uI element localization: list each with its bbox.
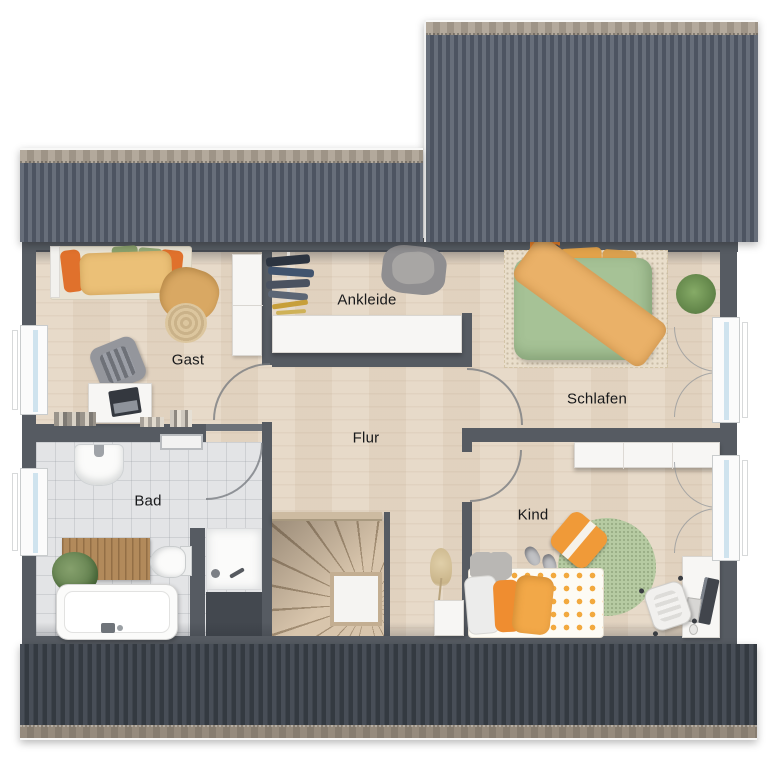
ankleide-sideboard xyxy=(272,315,462,353)
roof-bottom xyxy=(20,644,757,740)
gast-armchair-cushion xyxy=(98,345,137,385)
kind-window-glass xyxy=(724,460,729,558)
roof-top-left-ridge xyxy=(20,148,423,163)
flur-cabinet xyxy=(434,600,464,636)
stair-handrail xyxy=(272,512,382,521)
bad-bathtub xyxy=(56,584,178,640)
gast-window-sill xyxy=(12,330,18,410)
room-label-kind: Kind xyxy=(518,507,549,524)
bad-bathtub-faucet xyxy=(101,623,115,633)
bad-window-glass xyxy=(33,473,38,553)
stair-rail-wall xyxy=(384,512,390,636)
stair-void xyxy=(330,572,382,626)
wall-schlafen-kind xyxy=(462,428,720,442)
bad-bathtub-drain xyxy=(117,625,123,631)
bad-shower-drain xyxy=(211,569,220,578)
gast-laptop xyxy=(108,387,142,417)
room-label-schlafen: Schlafen xyxy=(567,391,627,408)
bad-wall-niche xyxy=(160,434,203,450)
schlafen-window xyxy=(712,317,740,423)
bad-shower-head xyxy=(229,567,245,578)
bad-door-lintel xyxy=(206,424,262,431)
roof-top-right-ridge xyxy=(426,20,758,35)
bad-sink xyxy=(74,444,124,486)
gast-books-2 xyxy=(140,417,164,427)
gast-bed-headboard xyxy=(50,246,60,298)
gast-books-3 xyxy=(170,410,192,427)
gast-wardrobe-divider xyxy=(233,305,263,306)
gast-books-1 xyxy=(54,412,96,426)
kind-chair-seat xyxy=(652,589,683,623)
kind-cushion-strap xyxy=(562,521,596,560)
exterior-wall-left xyxy=(22,238,36,652)
roof-top-right xyxy=(424,20,758,242)
ankleide-clothes-pile xyxy=(380,243,449,297)
roof-bottom-ridge xyxy=(20,725,757,740)
bad-window xyxy=(20,468,48,556)
gast-window xyxy=(20,325,48,415)
kind-window-sill xyxy=(742,460,748,556)
schlafen-window-glass xyxy=(724,322,729,420)
wall-ankleide-flur xyxy=(272,353,472,367)
gast-wardrobe xyxy=(232,254,262,356)
wall-ankleide-schlafen xyxy=(462,313,472,367)
wall-shower-pier xyxy=(190,528,205,636)
room-label-bad: Bad xyxy=(134,493,161,510)
room-label-gast: Gast xyxy=(172,352,204,369)
bad-window-sill xyxy=(12,473,18,551)
roof-top-left xyxy=(20,148,423,242)
bad-toilet-bowl xyxy=(150,546,186,578)
gast-window-glass xyxy=(33,330,38,412)
room-label-ankleide: Ankleide xyxy=(337,292,396,309)
kind-wardrobe-divider-2 xyxy=(672,443,673,469)
bad-sink-faucet xyxy=(94,445,104,457)
kind-wardrobe-divider-1 xyxy=(623,443,624,469)
schlafen-window-sill xyxy=(742,322,748,418)
wall-bad-stairs xyxy=(262,422,272,636)
flur-dried-plant xyxy=(420,548,460,606)
floor-plan: Gast Ankleide Schlafen Flur Bad Kind xyxy=(0,0,775,763)
gast-blanket xyxy=(79,250,172,295)
gast-laptop-keyboard xyxy=(113,400,138,414)
gast-round-rug xyxy=(165,303,207,343)
kind-window xyxy=(712,455,740,561)
bad-shower-tray xyxy=(206,528,262,590)
room-label-flur: Flur xyxy=(353,430,380,447)
schlafen-plant xyxy=(676,274,716,314)
kind-mouse xyxy=(689,624,698,635)
kind-blanket xyxy=(511,574,555,636)
ankleide-clothes-pile-top xyxy=(391,251,435,285)
exterior-wall-right xyxy=(720,238,737,652)
